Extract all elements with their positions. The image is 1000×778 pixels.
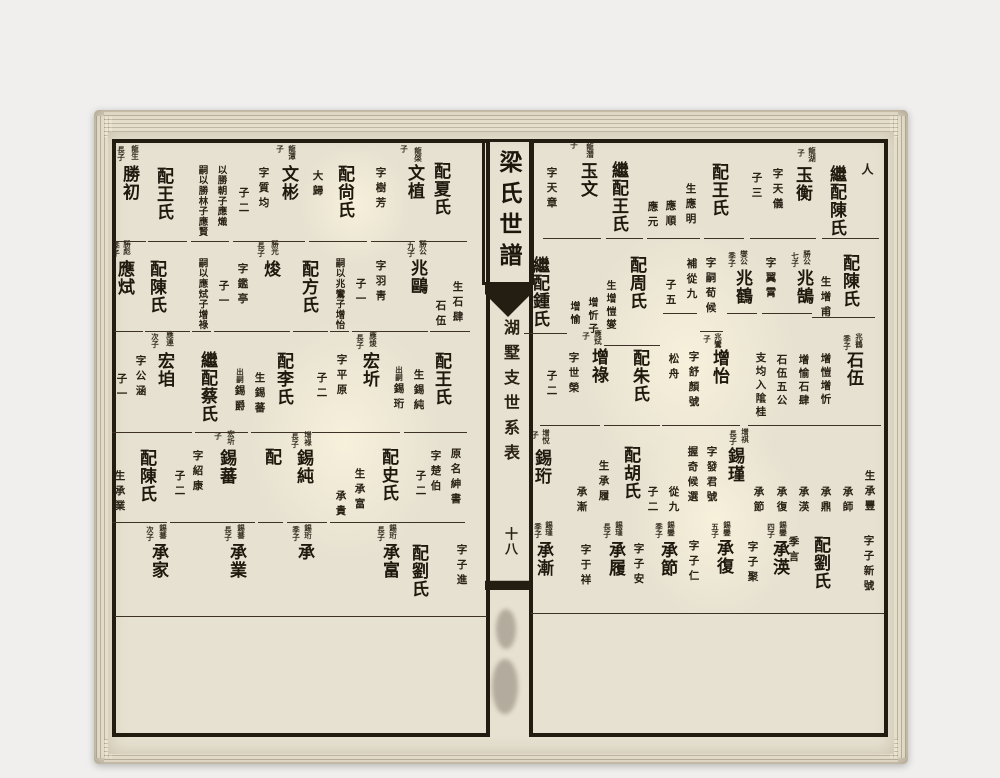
name-column: 錫純: [295, 449, 312, 485]
name-column: 配劉氏: [410, 544, 427, 598]
kin-prefix-column: 子: [570, 141, 578, 149]
annotation-column: 生應明: [684, 183, 695, 228]
name-column: 繼配蔡氏: [199, 351, 216, 423]
annotation-column: 承節: [752, 486, 763, 516]
annotation-column: 生承業: [113, 470, 124, 515]
page-number: 十八: [501, 527, 520, 557]
entry-underline: [293, 331, 328, 332]
name-column: 配王氏: [433, 352, 450, 406]
entry-underline: [604, 425, 660, 426]
annotation-column: 字嗣荀候: [704, 257, 715, 317]
entry-underline: [748, 425, 881, 426]
note-column: 嗣以應烒子增祿: [196, 258, 206, 330]
entry-underline: [312, 432, 400, 433]
entry-underline: [606, 238, 643, 239]
annotation-column: 生承富: [353, 468, 364, 513]
entry-underline: [704, 238, 744, 239]
annotation-column: 字楚伯: [429, 450, 440, 495]
annotation-column: 子二: [237, 187, 248, 217]
name-column: 勝初: [121, 165, 138, 201]
kin-prefix-column: 季子: [728, 252, 736, 267]
entry-underline: [330, 331, 349, 332]
name-column: 玉衡: [794, 166, 811, 202]
note-column: 增愉: [568, 301, 578, 327]
name-column: 承家: [150, 543, 167, 579]
annotation-column: 子二: [173, 470, 184, 500]
name-column: 焌: [262, 260, 279, 278]
annotation-column: 生承履: [597, 460, 608, 505]
annotation-column: 子一: [115, 373, 126, 403]
annotation-column: 石伍五公: [775, 354, 786, 408]
annotation-column: 字羽靑: [374, 260, 385, 305]
annotation-column: 字舒顏號: [687, 351, 698, 411]
name-column: 配王氏: [710, 163, 727, 217]
kin-prefix-column: 季子: [534, 523, 542, 538]
name-column: 兆鶴: [734, 269, 751, 305]
entry-underline: [404, 432, 467, 433]
entry-underline: [309, 241, 367, 242]
entry-underline: [214, 331, 290, 332]
entry-underline: [727, 313, 757, 314]
annotation-column: 松舟: [667, 353, 678, 383]
annotation-column: 錫爵: [233, 385, 244, 415]
entry-underline: [112, 522, 167, 523]
note-column: 嗣以勝林子應賢: [196, 165, 206, 237]
kin-prefix-column: 子: [400, 145, 408, 153]
annotation-column: 子一: [354, 278, 365, 308]
name-column: 石伍: [845, 351, 862, 387]
annotation-column: 承師: [841, 486, 852, 516]
annotation-column: 石伍: [434, 300, 445, 330]
entry-underline: [371, 241, 415, 242]
note-column: 嗣以兆鸞子增怡: [333, 258, 343, 330]
spine-column: 梁氏世譜 湖墅支世系表 十八: [482, 139, 534, 737]
kin-prefix-column: 子: [703, 335, 711, 343]
annotation-column: 生錫蕃: [253, 372, 264, 417]
kin-prefix-column: 勝公: [803, 250, 811, 265]
kin-prefix-column: 季子: [655, 523, 663, 538]
name-column: 承復: [715, 539, 732, 575]
annotation-column: 原名紳書: [449, 448, 460, 508]
kin-prefix-column: 錫瑾: [615, 521, 623, 536]
name-column: 繼配王氏: [610, 161, 627, 233]
annotation-column: 字天儀: [771, 168, 782, 213]
book-title: 梁氏世譜: [491, 150, 525, 274]
kin-prefix-column: 錫珩: [304, 524, 312, 539]
left-page: 配夏氏龍棨子文植字樹芳配尙氏大歸龍潭子文彬字質均子二以勝朝子應熾嗣以勝林子應賢配…: [112, 139, 490, 737]
annotation-column: 承鼎: [819, 486, 830, 516]
name-column: 配陳氏: [138, 449, 155, 503]
kin-prefix-column: 長子: [356, 334, 364, 349]
name-column: 宏圻: [361, 352, 378, 388]
kin-prefix-column: 增悅: [542, 429, 550, 444]
fishtail-ornament-bottom: [485, 557, 531, 590]
kin-prefix-column: 龍棨: [414, 147, 422, 162]
name-column: 配劉氏: [812, 536, 829, 590]
annotation-column: 生錫純: [412, 369, 423, 414]
entry-underline: [663, 313, 697, 314]
name-column: 錫珩: [533, 449, 550, 485]
spine-title-box: 梁氏世譜: [482, 139, 534, 285]
entry-underline: [148, 241, 187, 242]
entry-underline: [700, 331, 723, 332]
entry-underline: [112, 432, 192, 433]
note-column: 生增愷燮: [604, 280, 614, 332]
kin-prefix-column: 龍湖: [808, 147, 816, 162]
name-column: 配尙氏: [336, 165, 353, 219]
annotation-column: 子二: [315, 372, 326, 402]
name-column: 承富: [381, 543, 398, 579]
annotation-column: 大歸: [311, 170, 322, 200]
name-column: 配: [263, 448, 280, 466]
kin-prefix-column: 錫鑾: [667, 521, 675, 536]
annotation-column: 承渶: [797, 486, 808, 516]
annotation-column: 承復: [775, 486, 786, 516]
entry-underline: [115, 616, 487, 617]
name-column: 增怡: [711, 349, 728, 385]
kin-prefix-column: 長子: [729, 430, 737, 445]
annotation-column: 承貴: [334, 490, 345, 520]
annotation-column: 字子聚: [746, 541, 757, 586]
kin-prefix-column: 龍潭: [288, 145, 296, 160]
kin-prefix-column: 應焌: [369, 332, 377, 347]
name-column: 承漸: [535, 541, 552, 577]
genealogy-scan: 配夏氏龍棨子文植字樹芳配尙氏大歸龍潭子文彬字質均子二以勝朝子應熾嗣以勝林子應賢配…: [0, 0, 1000, 778]
annotation-column: 子一: [217, 280, 228, 310]
annotation-column: 字樹芳: [374, 167, 385, 212]
entry-underline: [419, 241, 467, 242]
annotation-column: 字翼霄: [764, 257, 775, 302]
fishtail-ornament-top: [485, 285, 531, 317]
name-column: 配胡氏: [622, 446, 639, 500]
kin-prefix-column: 次子: [146, 526, 154, 541]
entry-underline: [430, 331, 470, 332]
entry-underline: [822, 238, 879, 239]
annotation-column: 人: [861, 163, 873, 180]
annotation-column: 字公涵: [134, 355, 145, 400]
entry-underline: [192, 331, 211, 332]
kin-prefix-column: 錫鑾: [779, 521, 787, 536]
spine-crease-shadow: [492, 659, 518, 714]
entry-underline: [258, 522, 283, 523]
entry-underline: [115, 241, 146, 242]
name-column: 兆鵠: [795, 269, 812, 305]
kin-prefix-column: 錫蕃: [237, 524, 245, 539]
annotation-column: 補從九: [685, 258, 696, 303]
annotation-column: 支均入隂桂: [754, 352, 765, 420]
kin-prefix-column: 季子: [292, 526, 300, 541]
annotation-column: 字平原: [335, 354, 346, 399]
annotation-column: 字子仁: [687, 540, 698, 585]
annotation-column: 從九: [667, 486, 678, 516]
name-column: 配朱氏: [631, 349, 648, 403]
entry-underline: [330, 522, 465, 523]
section-title: 湖墅支世系表: [497, 319, 521, 469]
name-column: 文植: [406, 164, 423, 200]
kin-prefix-column: 長子: [224, 526, 232, 541]
kin-prefix-column: 兆鸞: [714, 333, 722, 348]
annotation-column: 應元: [646, 201, 657, 231]
annotation-column: 字子安: [632, 543, 643, 588]
kin-prefix-column: 子: [582, 332, 590, 340]
entry-underline: [647, 238, 700, 239]
annotation-column: 應順: [664, 200, 675, 230]
name-column: 配夏氏: [432, 162, 449, 216]
kin-prefix-column: 長子: [377, 526, 385, 541]
kin-prefix-column: 季子: [112, 242, 120, 257]
name-column: 配史氏: [380, 448, 397, 502]
entry-underline: [251, 432, 308, 433]
annotation-column: 字紹康: [191, 450, 202, 495]
kin-prefix-column: 龍潛: [586, 143, 594, 158]
kin-prefix-column: 長子: [291, 433, 299, 448]
kin-prefix-column: 錫鑾: [723, 521, 731, 536]
name-column: 承履: [607, 541, 624, 577]
kin-prefix-column: 錫蕃: [159, 524, 167, 539]
entry-underline: [114, 331, 143, 332]
annotation-column: 子三: [750, 172, 761, 202]
entry-underline: [750, 238, 816, 239]
entry-underline: [540, 425, 600, 426]
name-column: 配王氏: [155, 167, 172, 221]
name-column: 承節: [659, 541, 676, 577]
kin-prefix-column: 五子: [711, 523, 719, 538]
name-column: 配李氏: [275, 352, 292, 406]
annotation-column: 字質均: [257, 167, 268, 212]
name-column: 繼配陳氏: [828, 165, 845, 237]
annotation-column: 錫珩: [392, 383, 403, 413]
name-column: 玉文: [579, 162, 596, 198]
annotation-column: 字于祥: [579, 544, 590, 589]
entry-underline: [662, 425, 740, 426]
name-column: 承渶: [771, 540, 788, 576]
name-column: 配陳氏: [148, 260, 165, 314]
kin-prefix-column: 長子: [603, 523, 611, 538]
annotation-column: 字發君號: [705, 446, 716, 506]
entry-underline: [352, 331, 428, 332]
kin-prefix-column: 兆鶴: [855, 333, 863, 348]
name-column: 文彬: [280, 165, 297, 201]
name-column: 宏垍: [156, 352, 173, 388]
kin-prefix-column: 增祺: [741, 428, 749, 443]
right-page: 人繼配陳氏龍湖子玉衡字天儀子三配王氏生應明應順應元繼配王氏龍潛子玉文字天章配陳氏…: [529, 139, 888, 737]
annotation-column: 生增甫: [819, 276, 830, 321]
annotation-column: 承漸: [575, 486, 586, 516]
spine-crease-shadow: [496, 609, 516, 649]
entry-underline: [812, 317, 875, 318]
entry-underline: [762, 313, 812, 314]
annotation-column: 增愷增忻: [819, 353, 830, 407]
kin-prefix-column: 應烒: [594, 330, 602, 345]
annotation-column: 字世榮: [567, 352, 578, 397]
annotation-column: 字子進: [455, 544, 466, 589]
kin-prefix-column: 子: [797, 149, 805, 157]
annotation-column: 字子新號: [862, 535, 873, 595]
entry-underline: [604, 345, 660, 346]
annotation-column: 子二: [545, 370, 556, 400]
kin-prefix-column: 九子: [407, 242, 415, 257]
entry-underline: [145, 331, 190, 332]
name-column: 承業: [228, 543, 245, 579]
name-column: 兆鷗: [409, 259, 426, 295]
kin-prefix-column: 四子: [767, 523, 775, 538]
annotation-column: 生承豐: [863, 470, 874, 515]
name-column: 錫蕃: [218, 449, 235, 485]
kin-prefix-column: 長子: [257, 242, 265, 257]
annotation-column: 字鑑亭: [236, 263, 247, 308]
annotation-column: 子五: [664, 279, 675, 309]
kin-prefix-column: 錫珩: [389, 524, 397, 539]
kin-prefix-column: 出嗣: [395, 366, 403, 381]
entry-underline: [233, 241, 305, 242]
kin-prefix-column: 長子: [117, 146, 125, 161]
entry-underline: [195, 432, 248, 433]
kin-prefix-column: 次子: [151, 333, 159, 348]
kin-prefix-column: 七子: [791, 252, 799, 267]
annotation-column: 握奇候選: [686, 446, 697, 506]
name-column: 錫瑾: [726, 447, 743, 483]
annotation-column: 字天章: [545, 167, 556, 212]
name-column: 配方氏: [300, 260, 317, 314]
entry-underline: [191, 241, 229, 242]
name-column: 配周氏: [628, 256, 645, 310]
annotation-column: 生石肆: [451, 281, 462, 326]
annotation-column: 子二: [646, 486, 657, 516]
kin-prefix-column: 龍生: [131, 145, 139, 160]
annotation-column: 子二: [414, 470, 425, 500]
name-column: 應烒: [116, 260, 133, 296]
kin-prefix-column: 季子: [843, 335, 851, 350]
note-column: 以勝朝子應熾: [215, 165, 225, 227]
annotation-column: 增愉石肆: [797, 354, 808, 408]
entry-underline: [531, 613, 884, 614]
entry-underline: [287, 522, 327, 523]
entry-underline: [543, 238, 601, 239]
kin-prefix-column: 錫瑾: [545, 521, 553, 536]
name-column: 承: [296, 543, 313, 561]
name-column: 增祿: [590, 348, 607, 384]
kin-prefix-column: 子: [276, 145, 284, 153]
kin-prefix-column: 出嗣: [236, 368, 244, 383]
kin-prefix-column: 應連: [166, 331, 174, 346]
name-column: 配陳氏: [841, 254, 858, 308]
entry-underline: [170, 522, 255, 523]
kin-prefix-column: 燮公: [740, 250, 748, 265]
